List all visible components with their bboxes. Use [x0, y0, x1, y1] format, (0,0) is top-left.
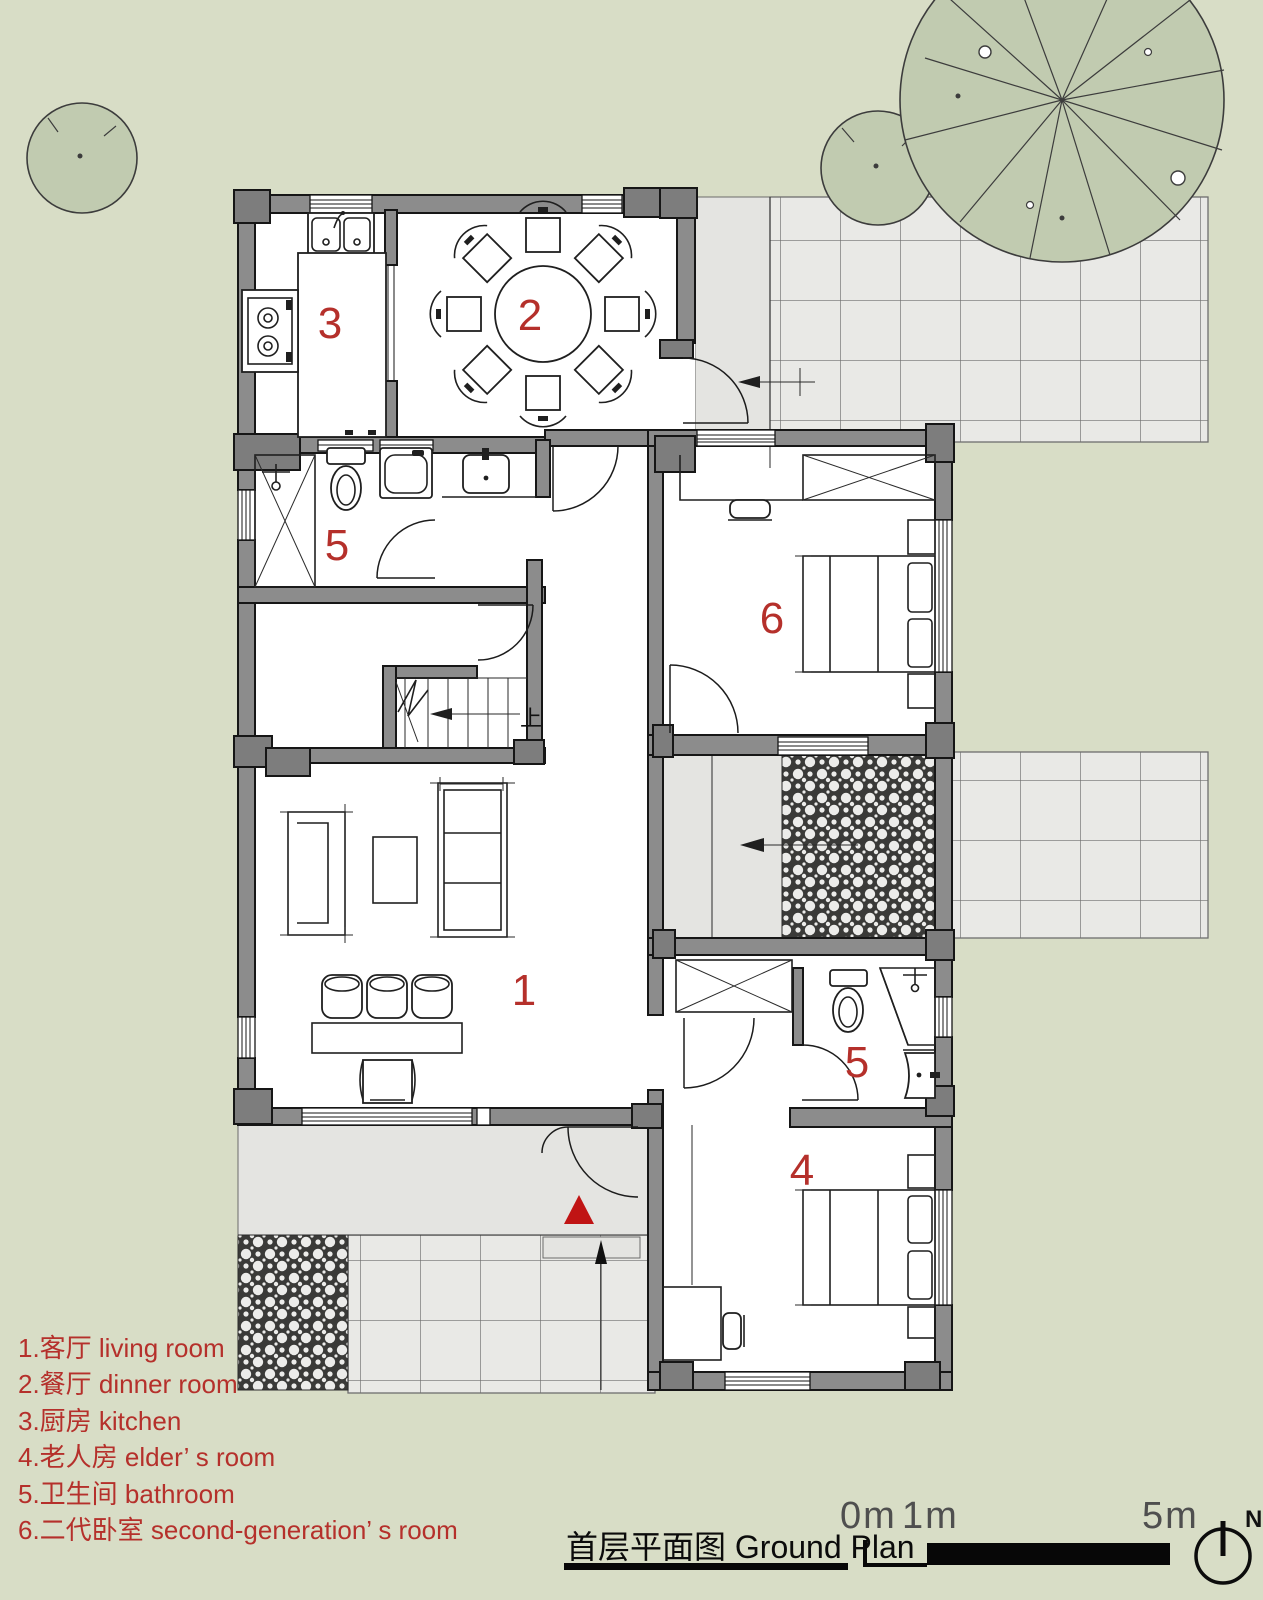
- entry-step: [543, 1237, 640, 1258]
- armchair: [360, 1060, 415, 1103]
- window: [238, 1017, 255, 1058]
- stairs-up-label: 上: [520, 707, 542, 732]
- counter-mark: [368, 430, 376, 435]
- scale-bar-solid-segment: [927, 1543, 1170, 1565]
- south-tile-patio: [348, 1235, 655, 1393]
- legend-item: 2.餐厅 dinner room: [18, 1369, 238, 1399]
- shrub-tree: [27, 103, 137, 213]
- bedroom4-label: 4: [790, 1146, 814, 1195]
- title-underline: [564, 1563, 848, 1570]
- window: [778, 737, 868, 755]
- bathroom-sink: [903, 1050, 940, 1098]
- floor-plan-page: 上: [0, 0, 1263, 1600]
- round-dining-table: [495, 266, 591, 362]
- double-sink: [308, 211, 374, 255]
- stove: [242, 290, 298, 372]
- window: [310, 195, 372, 213]
- window: [935, 520, 952, 672]
- scale-five-label: 5m: [1142, 1495, 1199, 1537]
- dining-label: 2: [518, 291, 542, 340]
- south-ornamental-paving: [238, 1235, 348, 1390]
- bedroom6-label: 6: [760, 594, 784, 643]
- upper-bath-label: 5: [325, 521, 349, 570]
- legend-item: 1.客厅 living room: [18, 1333, 225, 1363]
- legend-item: 6.二代卧室 second-generation’ s room: [18, 1515, 458, 1545]
- counter-mark: [345, 430, 353, 435]
- window: [725, 1372, 810, 1390]
- scale-one-label: 1m: [902, 1495, 959, 1537]
- stools: [322, 975, 452, 1018]
- window: [302, 1108, 490, 1125]
- window: [238, 490, 255, 540]
- scale-zero-label: 0m: [840, 1495, 897, 1537]
- living-label: 1: [512, 966, 536, 1015]
- legend-item: 4.老人房 elder’ s room: [18, 1442, 275, 1472]
- legend-item: 3.厨房 kitchen: [18, 1406, 181, 1436]
- window: [935, 997, 952, 1037]
- washing-machine: [380, 448, 432, 498]
- kitchen-label: 3: [318, 299, 342, 348]
- desk-chair: [728, 500, 772, 520]
- legend-item: 5.卫生间 bathroom: [18, 1479, 235, 1509]
- window: [697, 430, 775, 446]
- north-label: N: [1245, 1506, 1262, 1533]
- entry-vestibule-paving: [695, 197, 770, 468]
- window: [935, 1190, 952, 1305]
- window: [582, 195, 622, 213]
- ground-plan-svg: 上: [0, 0, 1263, 1600]
- lower-bath-label: 5: [845, 1038, 869, 1087]
- desk-chair: [723, 1313, 744, 1349]
- east-tile-patio: [952, 752, 1208, 938]
